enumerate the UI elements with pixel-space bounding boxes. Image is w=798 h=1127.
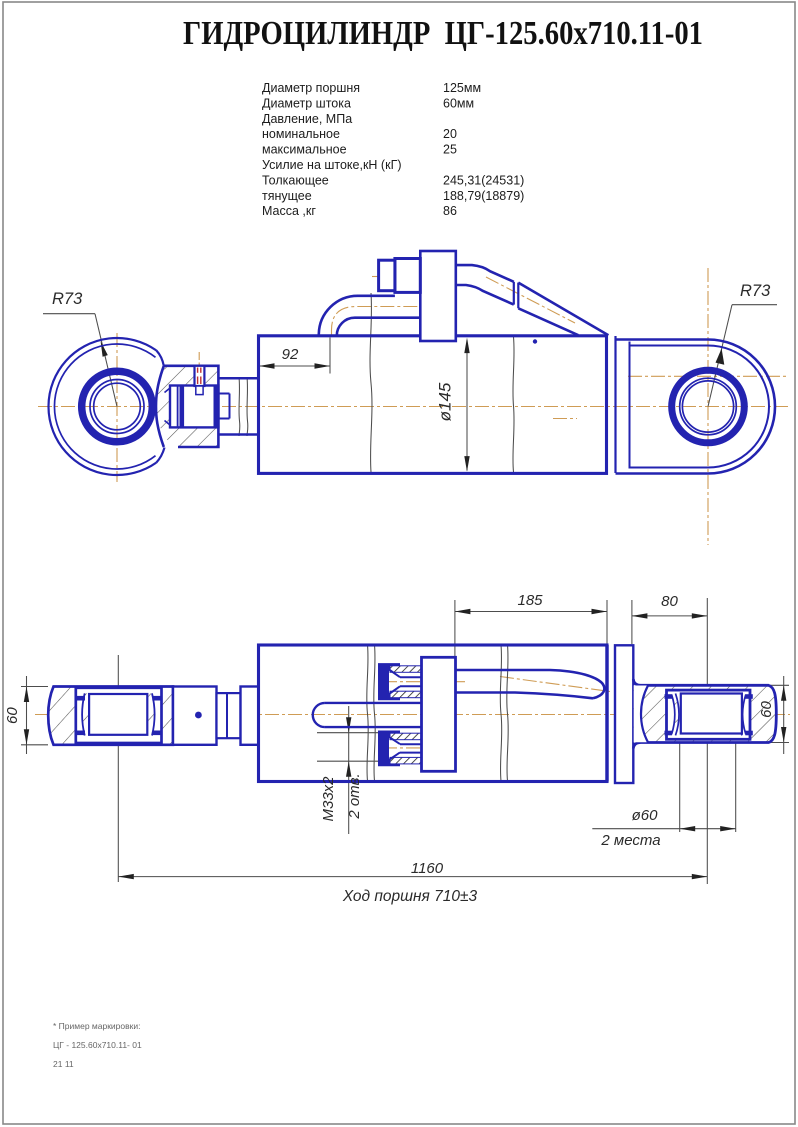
svg-text:ГИДРОЦИЛИНДР ЦГ-125.60х710.11: ГИДРОЦИЛИНДР ЦГ-125.60х710.11-01 [183, 15, 703, 52]
svg-text:125мм: 125мм [443, 81, 481, 95]
svg-text:ø60: ø60 [632, 807, 659, 824]
svg-text:60: 60 [4, 707, 21, 724]
svg-text:* Пример маркировки:: * Пример маркировки: [53, 1021, 140, 1031]
svg-text:Давление, МПа: Давление, МПа [262, 112, 352, 126]
svg-text:номинальное: номинальное [262, 127, 340, 141]
svg-text:185: 185 [517, 592, 543, 609]
svg-text:188,79(18879): 188,79(18879) [443, 189, 524, 203]
svg-text:R73: R73 [52, 290, 83, 308]
svg-text:Диаметр поршня: Диаметр поршня [262, 81, 360, 95]
svg-text:92: 92 [282, 346, 299, 363]
svg-text:86: 86 [443, 204, 457, 218]
svg-text:60мм: 60мм [443, 96, 474, 110]
svg-text:ø145: ø145 [436, 382, 455, 421]
svg-text:ЦГ - 125.60х710.11- 01: ЦГ - 125.60х710.11- 01 [53, 1040, 142, 1050]
svg-text:Толкающее: Толкающее [262, 173, 329, 187]
svg-text:21 11: 21 11 [53, 1059, 74, 1069]
svg-text:245,31(24531): 245,31(24531) [443, 173, 524, 187]
svg-text:80: 80 [661, 593, 678, 610]
svg-text:тянущее: тянущее [262, 189, 312, 203]
svg-text:2 места: 2 места [600, 832, 660, 849]
svg-text:2 отв.: 2 отв. [346, 773, 363, 819]
svg-text:Масса ,кг: Масса ,кг [262, 204, 316, 218]
svg-text:Диаметр штока: Диаметр штока [262, 96, 351, 110]
svg-text:Усилие на штоке,кН (кГ): Усилие на штоке,кН (кГ) [262, 158, 402, 172]
svg-text:1160: 1160 [411, 860, 444, 877]
svg-text:М33х2: М33х2 [320, 776, 337, 822]
svg-text:20: 20 [443, 127, 457, 141]
svg-text:Ход поршня 710±3: Ход поршня 710±3 [342, 888, 478, 905]
svg-text:R73: R73 [740, 282, 771, 300]
svg-text:максимальное: максимальное [262, 143, 347, 157]
svg-text:60: 60 [758, 701, 775, 718]
svg-text:25: 25 [443, 143, 457, 157]
